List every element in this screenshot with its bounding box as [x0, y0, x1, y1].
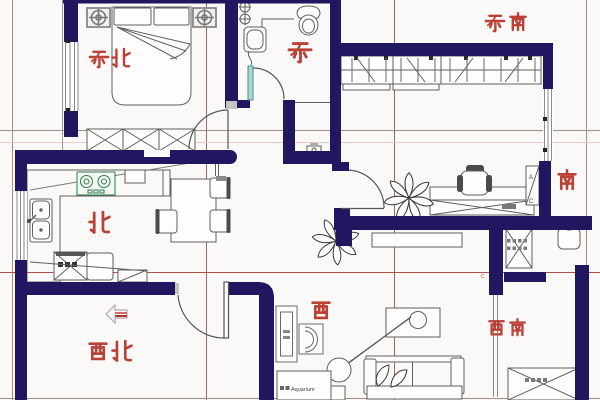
svg-text:Aquarium: Aquarium	[291, 387, 315, 393]
svg-text:C: C	[529, 199, 534, 205]
svg-text:C: C	[481, 274, 485, 280]
svg-text:A: A	[529, 175, 533, 181]
